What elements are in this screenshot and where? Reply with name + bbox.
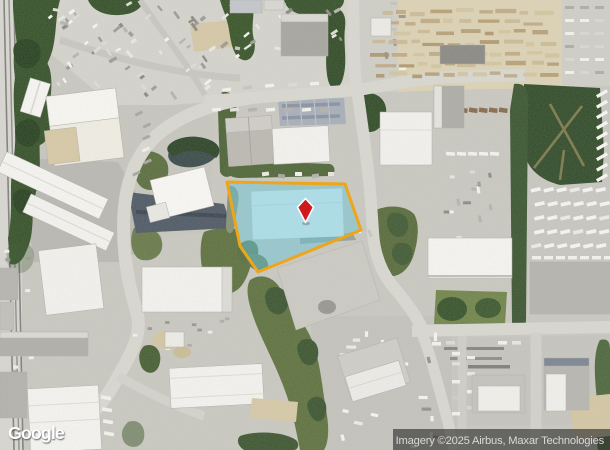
svg-text:Google: Google [8,423,65,443]
svg-text:Imagery ©2025 Airbus, Maxar Te: Imagery ©2025 Airbus, Maxar Technologies [396,435,605,447]
